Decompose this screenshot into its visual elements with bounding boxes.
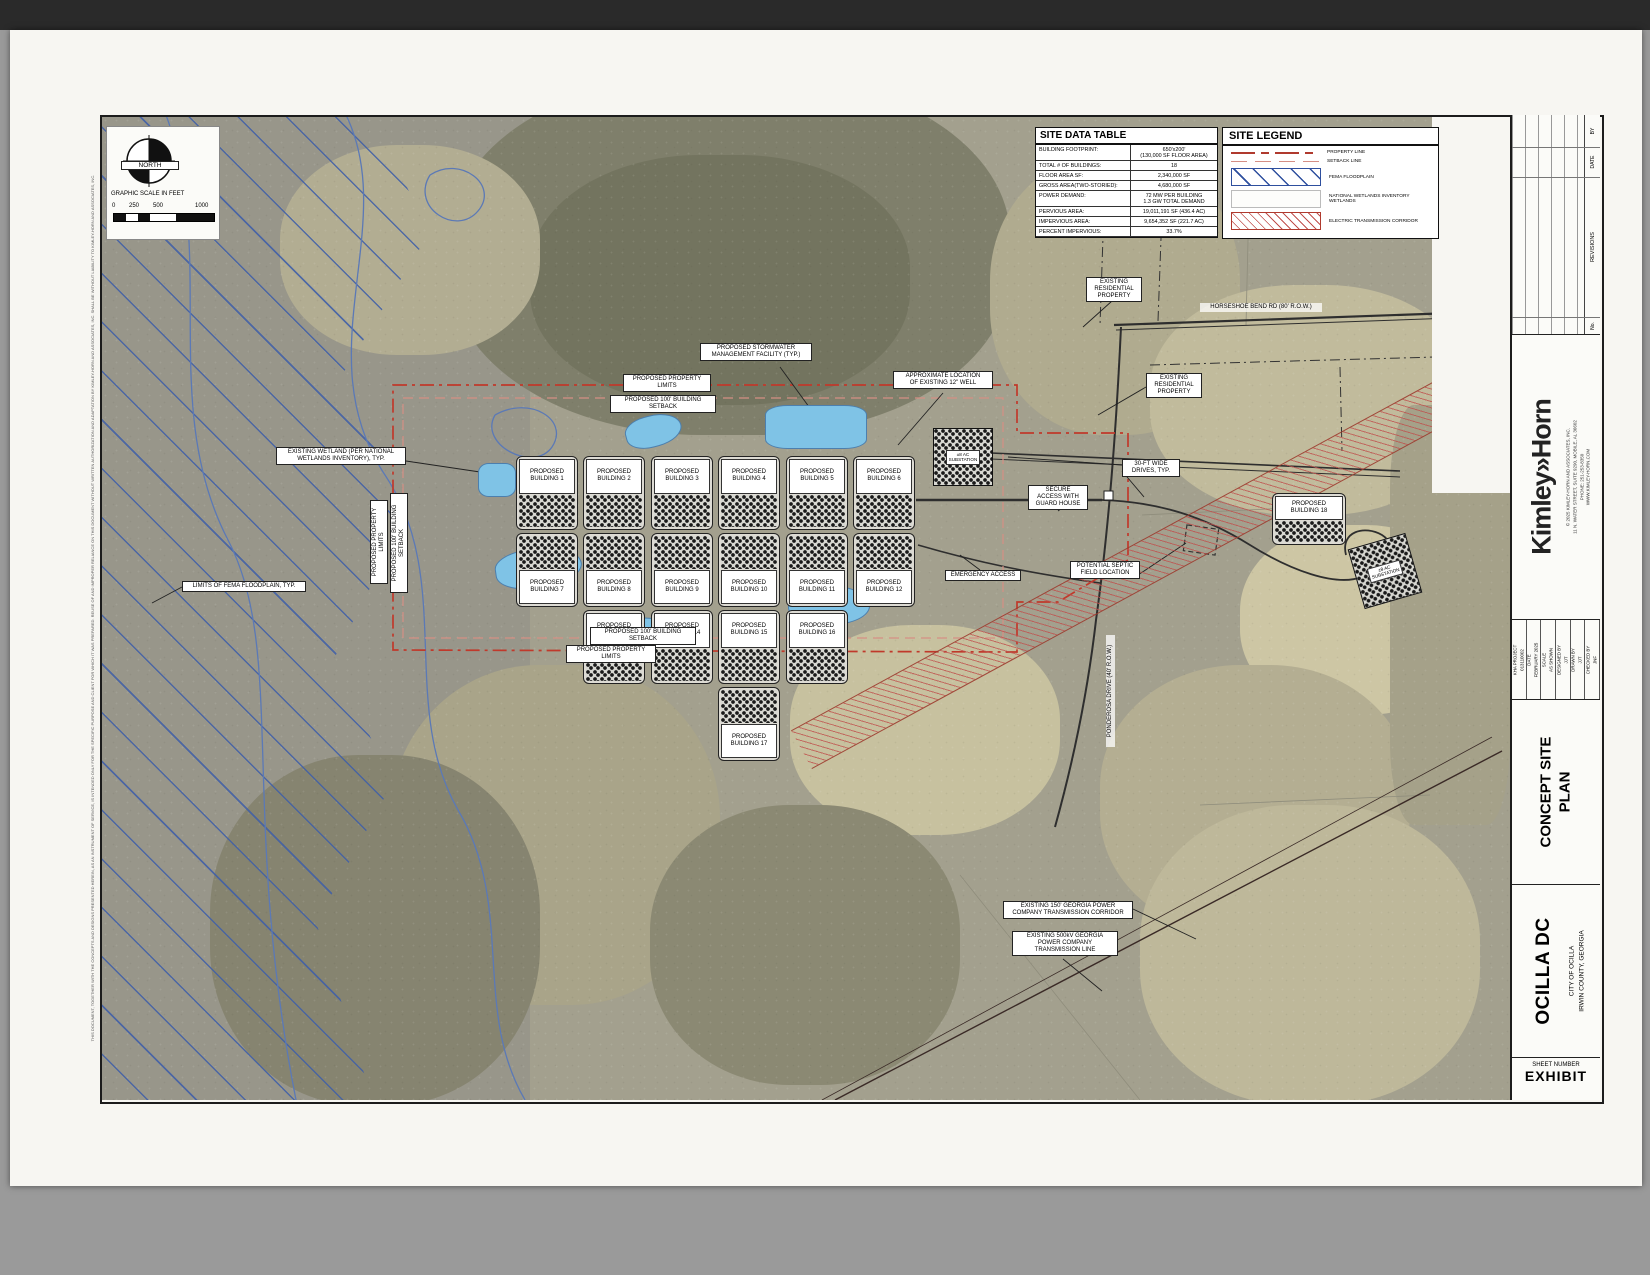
building-hatch [721, 495, 777, 528]
building-hatch [586, 536, 642, 569]
proposed-building-9: PROPOSED BUILDING 9 [651, 533, 713, 607]
site-data-row: FLOOR AREA SF:2,340,000 SF [1036, 171, 1217, 181]
north-arrow-scale-box: NORTH GRAPHIC SCALE IN FEET 0 250 500 10… [106, 126, 220, 240]
site-data-row: IMPERVIOUS AREA:9,654,352 SF (221.7 AC) [1036, 217, 1217, 227]
building-hatch [654, 495, 710, 528]
title-block: BY DATE REVISIONS No. Kimley»Horn © 2025… [1510, 115, 1600, 1100]
substation-label: ±8 AC SUBSTATION [1366, 559, 1403, 583]
substation: ±8 AC SUBSTATION [933, 428, 993, 486]
building-hatch [586, 495, 642, 528]
legend-label: PROPERTY LINE [1327, 150, 1365, 155]
info-col-kha-project: KHA PROJECT 013110002 [1512, 620, 1527, 699]
building-hatch [519, 495, 575, 528]
site-data-row: TOTAL # OF BUILDINGS:18 [1036, 161, 1217, 171]
legend-item: FEMA FLOODPLAIN [1231, 168, 1430, 186]
building-label: PROPOSED BUILDING 4 [721, 459, 777, 494]
scale-tick: 1000 [195, 203, 208, 209]
building-hatch [789, 536, 845, 569]
site-data-row: GROSS AREA(TWO-STORIED):4,680,000 SF [1036, 181, 1217, 191]
stormwater-pond [478, 463, 516, 497]
legend-label: ELECTRIC TRANSMISSION CORRIDOR [1329, 219, 1418, 224]
map-callout: PROPOSED PROPERTY LIMITS [566, 645, 656, 663]
building-label: PROPOSED BUILDING 15 [721, 613, 777, 648]
proposed-building-17: PROPOSED BUILDING 17 [718, 687, 780, 761]
map-callout: EMERGENCY ACCESS [945, 570, 1021, 581]
info-col-drawn-by: DRAWN BY JJT [1571, 620, 1586, 699]
substation-label: ±8 AC SUBSTATION [946, 450, 981, 465]
map-callout: PROPOSED STORMWATER MANAGEMENT FACILITY … [700, 343, 812, 361]
legend-label: NATIONAL WETLANDS INVENTORY WETLANDS [1329, 194, 1430, 204]
stormwater-pond [765, 405, 867, 449]
sheet-number-block: SHEET NUMBER EXHIBIT [1512, 1058, 1600, 1100]
aerial-map: PROPOSED BUILDING 1PROPOSED BUILDING 2PR… [100, 115, 1510, 1100]
revisions-col-date: DATE [1584, 147, 1602, 177]
info-col-scale: SCALE AS SHOWN [1541, 620, 1556, 699]
building-label: PROPOSED BUILDING 8 [586, 570, 642, 605]
proposed-building-18: PROPOSED BUILDING 18 [1272, 493, 1346, 545]
margin-disclaimer-text: THIS DOCUMENT, TOGETHER WITH THE CONCEPT… [90, 118, 96, 1098]
map-callout: PROPOSED PROPERTY LIMITS [623, 374, 711, 392]
building-label: PROPOSED BUILDING 9 [654, 570, 710, 605]
project-info-block: KHA PROJECT 013110002DATE FEBRUARY 2025S… [1512, 620, 1600, 700]
map-callout: SECURE ACCESS WITH GUARD HOUSE [1028, 485, 1088, 510]
building-label: PROPOSED BUILDING 1 [519, 459, 575, 494]
proposed-building-16: PROPOSED BUILDING 16 [786, 610, 848, 684]
building-hatch [721, 690, 777, 723]
property-swatch [1231, 152, 1319, 154]
building-label: PROPOSED BUILDING 18 [1275, 496, 1343, 520]
north-label: NORTH [121, 161, 179, 170]
building-hatch [1275, 521, 1343, 543]
project-name-block: OCILLA DC CITY OF OCILLAIRWIN COUNTY, GE… [1512, 885, 1600, 1058]
scale-bar [113, 213, 215, 222]
proposed-building-10: PROPOSED BUILDING 10 [718, 533, 780, 607]
scale-tick: 0 [112, 203, 115, 209]
building-label: PROPOSED BUILDING 16 [789, 613, 845, 648]
legend-item: NATIONAL WETLANDS INVENTORY WETLANDS [1231, 190, 1430, 208]
building-hatch [721, 536, 777, 569]
site-legend: SITE LEGEND PROPERTY LINESETBACK LINEFEM… [1222, 127, 1439, 239]
proposed-building-3: PROPOSED BUILDING 3 [651, 456, 713, 530]
map-callout: PROPOSED 100' BUILDING SETBACK [390, 493, 408, 593]
building-label: PROPOSED BUILDING 6 [856, 459, 912, 494]
map-callout: PROPOSED 100' BUILDING SETBACK [610, 395, 716, 413]
proposed-building-8: PROPOSED BUILDING 8 [583, 533, 645, 607]
revisions-block: BY DATE REVISIONS No. [1512, 115, 1600, 335]
revisions-col-no: No. [1584, 317, 1602, 335]
map-callout: PROPOSED 100' BUILDING SETBACK [590, 627, 696, 645]
proposed-building-1: PROPOSED BUILDING 1 [516, 456, 578, 530]
legend-item: PROPERTY LINE [1231, 150, 1430, 155]
map-callout: EXISTING WETLAND (PER NATIONAL WETLANDS … [276, 447, 406, 465]
proposed-building-15: PROPOSED BUILDING 15 [718, 610, 780, 684]
building-hatch [519, 536, 575, 569]
building-label: PROPOSED BUILDING 7 [519, 570, 575, 605]
corridor-swatch [1231, 212, 1321, 230]
site-data-row: PERVIOUS AREA:19,011,191 SF (436.4 AC) [1036, 207, 1217, 217]
map-callout: LIMITS OF FEMA FLOODPLAIN, TYP. [182, 581, 306, 592]
firm-address: © 2025 KIMLEY-HORN AND ASSOCIATES, INC. … [1565, 340, 1592, 615]
proposed-building-2: PROPOSED BUILDING 2 [583, 456, 645, 530]
building-label: PROPOSED BUILDING 12 [856, 570, 912, 605]
revisions-col-by: BY [1584, 115, 1602, 147]
building-hatch [789, 649, 845, 682]
sheet-number-value: EXHIBIT [1512, 1068, 1600, 1084]
map-callout: EXISTING RESIDENTIAL PROPERTY [1086, 277, 1142, 302]
building-label: PROPOSED BUILDING 2 [586, 459, 642, 494]
site-data-row: POWER DEMAND:72 MW PER BUILDING 1.3 GW T… [1036, 191, 1217, 207]
proposed-building-4: PROPOSED BUILDING 4 [718, 456, 780, 530]
fema-swatch [1231, 168, 1321, 186]
proposed-building-14: PROPOSED BUILDING 14 [651, 610, 713, 684]
map-callout: HORSESHOE BEND RD (80' R.O.W.) [1200, 303, 1322, 312]
site-data-table: SITE DATA TABLE BUILDING FOOTPRINT:650'x… [1035, 127, 1218, 238]
legend-item: ELECTRIC TRANSMISSION CORRIDOR [1231, 212, 1430, 230]
building-label: PROPOSED BUILDING 5 [789, 459, 845, 494]
building-hatch [856, 495, 912, 528]
scale-tick: 250 [129, 203, 139, 209]
project-location: CITY OF OCILLAIRWIN COUNTY, GEORGIA [1567, 887, 1587, 1055]
building-label: PROPOSED BUILDING 3 [654, 459, 710, 494]
sheet-title-block: CONCEPT SITE PLAN [1512, 700, 1600, 885]
proposed-building-7: PROPOSED BUILDING 7 [516, 533, 578, 607]
graphic-scale-title: GRAPHIC SCALE IN FEET [111, 191, 215, 197]
map-callout: PROPOSED PROPERTY LIMITS [370, 500, 388, 584]
legend-label: FEMA FLOODPLAIN [1329, 175, 1374, 180]
scanned-sheet: THIS DOCUMENT, TOGETHER WITH THE CONCEPT… [0, 0, 1650, 1275]
legend-item: SETBACK LINE [1231, 159, 1430, 164]
building-hatch [789, 495, 845, 528]
building-label: PROPOSED BUILDING 11 [789, 570, 845, 605]
firm-block: Kimley»Horn © 2025 KIMLEY-HORN AND ASSOC… [1512, 335, 1600, 620]
site-legend-title: SITE LEGEND [1223, 128, 1438, 146]
setback-swatch [1231, 161, 1319, 163]
map-callout: POTENTIAL SEPTIC FIELD LOCATION [1070, 561, 1140, 579]
building-label: PROPOSED BUILDING 17 [721, 724, 777, 759]
proposed-building-12: PROPOSED BUILDING 12 [853, 533, 915, 607]
proposed-building-5: PROPOSED BUILDING 5 [786, 456, 848, 530]
legend-label: SETBACK LINE [1327, 159, 1361, 164]
map-callout: EXISTING 500kV GEORGIA POWER COMPANY TRA… [1012, 931, 1118, 956]
proposed-building-11: PROPOSED BUILDING 11 [786, 533, 848, 607]
project-name: OCILLA DC [1533, 887, 1555, 1055]
scan-edge-band [0, 0, 1650, 30]
site-data-row: PERCENT IMPERVIOUS:33.7% [1036, 227, 1217, 237]
info-col-designed-by: DESIGNED BY JJT [1556, 620, 1571, 699]
building-hatch [654, 649, 710, 682]
photo-edge-gap [1432, 115, 1510, 493]
info-col-checked-by: CHECKED BY JNF [1585, 620, 1600, 699]
building-hatch [721, 649, 777, 682]
map-callout: EXISTING 150' GEORGIA POWER COMPANY TRAN… [1003, 901, 1133, 919]
scale-tick: 500 [153, 203, 163, 209]
margin-disclaimer: THIS DOCUMENT, TOGETHER WITH THE CONCEPT… [86, 115, 99, 1100]
revisions-col-title: REVISIONS [1584, 177, 1602, 317]
building-hatch [856, 536, 912, 569]
nwi-swatch [1231, 190, 1321, 208]
building-hatch [654, 536, 710, 569]
map-callout: PONDEROSA DRIVE (40' R.O.W.) [1106, 635, 1115, 747]
map-callout: APPROXIMATE LOCATION OF EXISTING 12" WEL… [893, 371, 993, 389]
proposed-building-6: PROPOSED BUILDING 6 [853, 456, 915, 530]
map-callout: 30-FT WIDE DRIVES, TYP. [1122, 459, 1180, 477]
site-data-table-title: SITE DATA TABLE [1036, 128, 1217, 145]
site-data-row: BUILDING FOOTPRINT:650'x200' (130,000 SF… [1036, 145, 1217, 161]
info-col-date: DATE FEBRUARY 2025 [1527, 620, 1542, 699]
sheet-title: CONCEPT SITE PLAN [1537, 703, 1575, 881]
building-label: PROPOSED BUILDING 10 [721, 570, 777, 605]
kimley-horn-logo: Kimley»Horn [1526, 338, 1557, 616]
map-callout: EXISTING RESIDENTIAL PROPERTY [1146, 373, 1202, 398]
